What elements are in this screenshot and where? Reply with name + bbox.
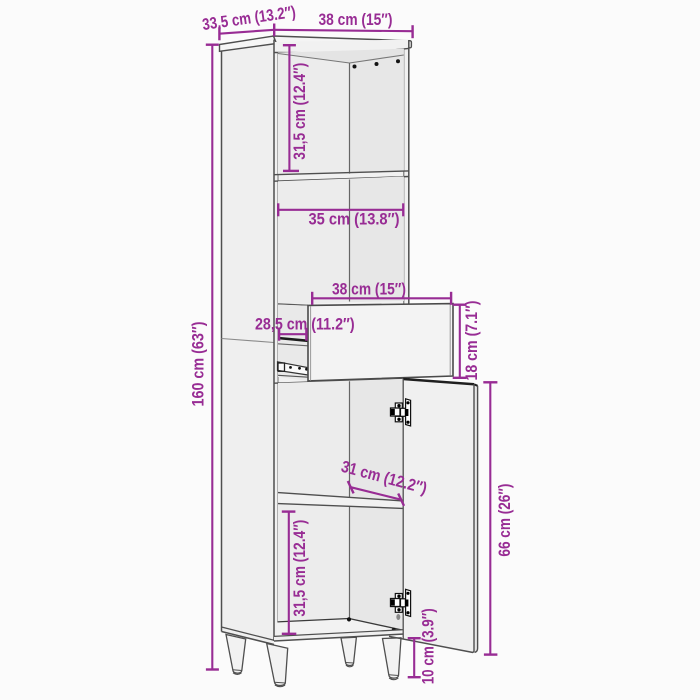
svg-text:28,5 cm (11.2″): 28,5 cm (11.2″): [255, 315, 355, 333]
svg-text:38 cm (15″): 38 cm (15″): [332, 280, 406, 298]
svg-text:35 cm (13.8″): 35 cm (13.8″): [309, 211, 400, 229]
svg-text:31,5 cm (12.4″): 31,5 cm (12.4″): [291, 520, 309, 617]
svg-text:38 cm (15″): 38 cm (15″): [319, 11, 393, 29]
svg-text:18 cm (7.1″): 18 cm (7.1″): [463, 301, 481, 381]
svg-text:31,5 cm (12.4″): 31,5 cm (12.4″): [291, 63, 309, 160]
svg-text:66 cm (26″): 66 cm (26″): [496, 484, 514, 557]
svg-text:10 cm (3.9″): 10 cm (3.9″): [419, 608, 437, 684]
svg-text:160 cm (63″): 160 cm (63″): [189, 322, 207, 407]
